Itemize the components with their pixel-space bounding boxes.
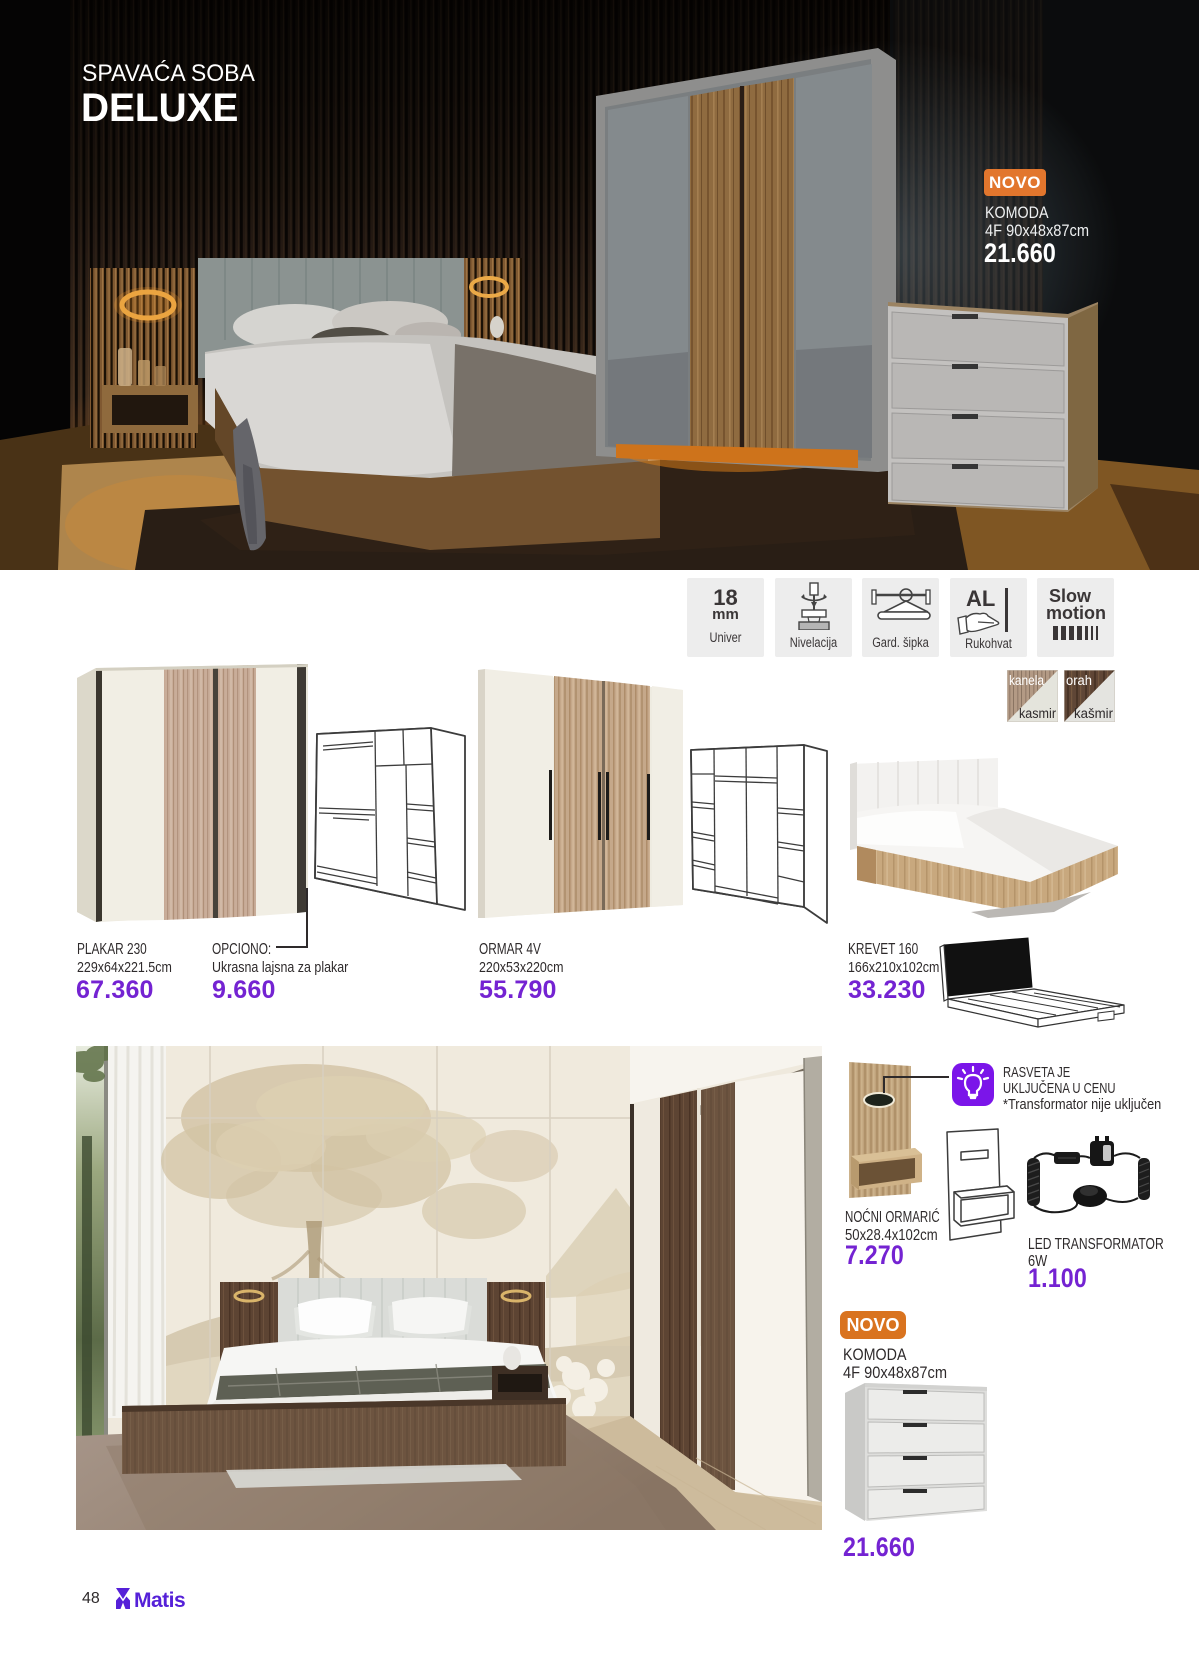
svg-text:kašmir: kašmir — [1074, 706, 1113, 721]
svg-text:orah: orah — [1066, 673, 1092, 688]
svg-text:kasmir: kasmir — [1019, 706, 1056, 721]
svg-text:kanela: kanela — [1009, 673, 1044, 688]
svg-text:Matis: Matis — [134, 1589, 185, 1612]
